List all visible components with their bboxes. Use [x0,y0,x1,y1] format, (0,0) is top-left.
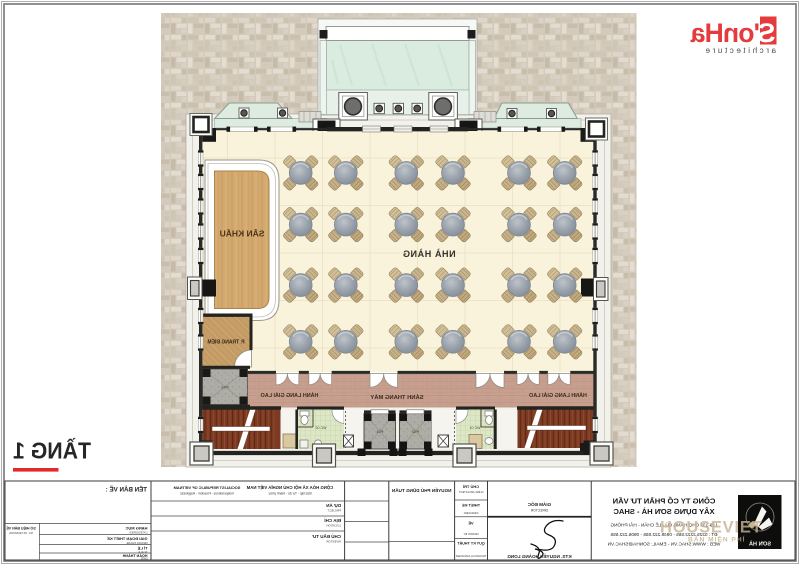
svg-text:PROJECT: PROJECT [327,509,341,513]
svg-text:DATE: DATE [141,557,148,561]
svg-text:Independence - Freedom - Happi: Independence - Freedom - Happiness [180,492,234,496]
svg-text:NHÀ HÀNG: NHÀ HÀNG [402,249,455,259]
svg-text:P. TRANG ĐIỂM: P. TRANG ĐIỂM [207,339,244,346]
svg-text:HOUSEVIET: HOUSEVIET [660,519,763,537]
svg-text:TÊN BẢN VẼ :: TÊN BẢN VẼ : [106,486,147,494]
svg-text:NO. OF DRAWING: NO. OF DRAWING [9,531,33,535]
svg-text:GIÁM ĐỐC: GIÁM ĐỐC [527,501,551,507]
svg-text:architecture: architecture [703,46,776,55]
svg-text:LOCATION: LOCATION [326,524,341,528]
svg-text:DRAWN BY: DRAWN BY [463,532,478,536]
svg-text:DỰ ÁN: DỰ ÁN [326,502,341,508]
svg-text:DIRECTOR: DIRECTOR [530,509,548,513]
svg-text:CHIEF ARCHITECT: CHIEF ARCHITECT [458,490,483,494]
svg-text:ĐỊA CHỈ: ĐỊA CHỈ [324,517,341,523]
svg-text:CÔNG TY CỔ PHẦN TƯ VẤN: CÔNG TY CỔ PHẦN TƯ VẤN [613,496,716,506]
svg-text:SÂN KHẤU: SÂN KHẤU [220,228,265,239]
svg-text:CHỦ ĐẦU TƯ: CHỦ ĐẦU TƯ [312,533,341,539]
svg-text:SƠN HÀ: SƠN HÀ [749,541,771,548]
svg-text:INVESTOR: INVESTOR [326,540,341,544]
svg-text:SỐ HIỆU BẢN VẼ: SỐ HIỆU BẢN VẼ [6,526,36,531]
svg-text:WC 01: WC 01 [470,426,481,430]
svg-text:THIẾT KẾ: THIẾT KẾ [462,503,481,508]
svg-text:SẢNH THANG MÁY: SẢNH THANG MÁY [370,394,423,401]
svg-text:XÂY DỰNG SƠN HÀ - SHAC: XÂY DỰNG SƠN HÀ - SHAC [613,507,715,516]
svg-text:CATEGORIES: CATEGORIES [129,531,147,535]
svg-text:HÀNH LANG GIẢI LAO: HÀNH LANG GIẢI LAO [261,392,319,399]
svg-text:DESIGN PHASE: DESIGN PHASE [126,541,147,545]
svg-text:SOCIALIST REPUBLIC OF VIETNAM: SOCIALIST REPUBLIC OF VIETNAM [174,485,241,490]
svg-text:QUY KT THUẬT: QUY KT THUẬT [457,541,485,546]
svg-text:VẼ: VẼ [468,521,474,526]
svg-text:KTS. NGUYỄN HOÀNG LONG: KTS. NGUYỄN HOÀNG LONG [507,553,572,559]
svg-text:HÀNH LANG GIẢI LAO: HÀNH LANG GIẢI LAO [529,392,587,399]
svg-text:WC 02: WC 02 [316,426,327,430]
svg-text:P01: P01 [375,429,383,434]
svg-text:CHỦ TRÌ: CHỦ TRÌ [463,484,479,489]
svg-text:TẦNG 1: TẦNG 1 [13,437,91,464]
svg-text:'onHa: 'onHa [690,18,760,48]
svg-text:CỘNG HÒA XÃ HỘI CHỦ NGHĨA VIỆT: CỘNG HÒA XÃ HỘI CHỦ NGHĨA VIỆT NAM [246,485,333,490]
svg-text:DESIGNED: DESIGNED [464,511,479,515]
svg-text:TECHNICAL MANAGER: TECHNICAL MANAGER [456,554,487,558]
svg-text:Độc lập - Tự do - Hạnh phúc: Độc lập - Tự do - Hạnh phúc [268,492,311,496]
svg-text:P02: P02 [411,429,419,434]
svg-text:P03: P03 [221,385,229,390]
svg-text:NGUYỄN PHÚ DŨNG TUẤN: NGUYỄN PHÚ DŨNG TUẤN [391,487,451,493]
